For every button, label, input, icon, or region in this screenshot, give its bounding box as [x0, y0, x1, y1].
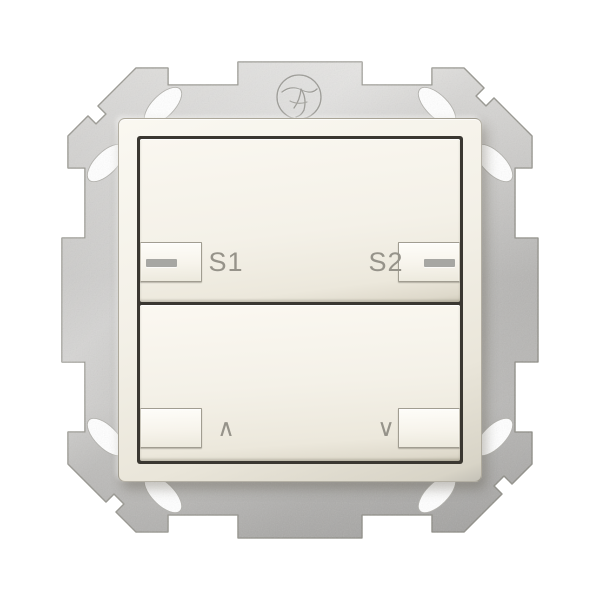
switch-frame: S1 S2 ∧: [118, 118, 482, 482]
button-down[interactable]: ∨: [300, 305, 460, 461]
button-up[interactable]: ∧: [140, 305, 300, 461]
led-indicator: [146, 259, 177, 267]
button-s1[interactable]: S1: [140, 139, 300, 302]
button-label-s1: S1: [204, 246, 248, 278]
button-s2[interactable]: S2: [300, 139, 460, 302]
led-window-up: [140, 408, 202, 448]
button-label-down: ∨: [364, 412, 408, 444]
led-window-s1: [140, 242, 202, 282]
product-photo-switch: S1 S2 ∧: [0, 0, 600, 600]
button-label-up: ∧: [204, 412, 248, 444]
rocker-top[interactable]: S1 S2: [140, 139, 460, 302]
led-indicator: [424, 259, 455, 267]
rocker-bottom[interactable]: ∧ ∨: [140, 305, 460, 461]
rocker-seam-area: S1 S2 ∧: [137, 136, 463, 464]
button-label-s2: S2: [364, 246, 408, 278]
